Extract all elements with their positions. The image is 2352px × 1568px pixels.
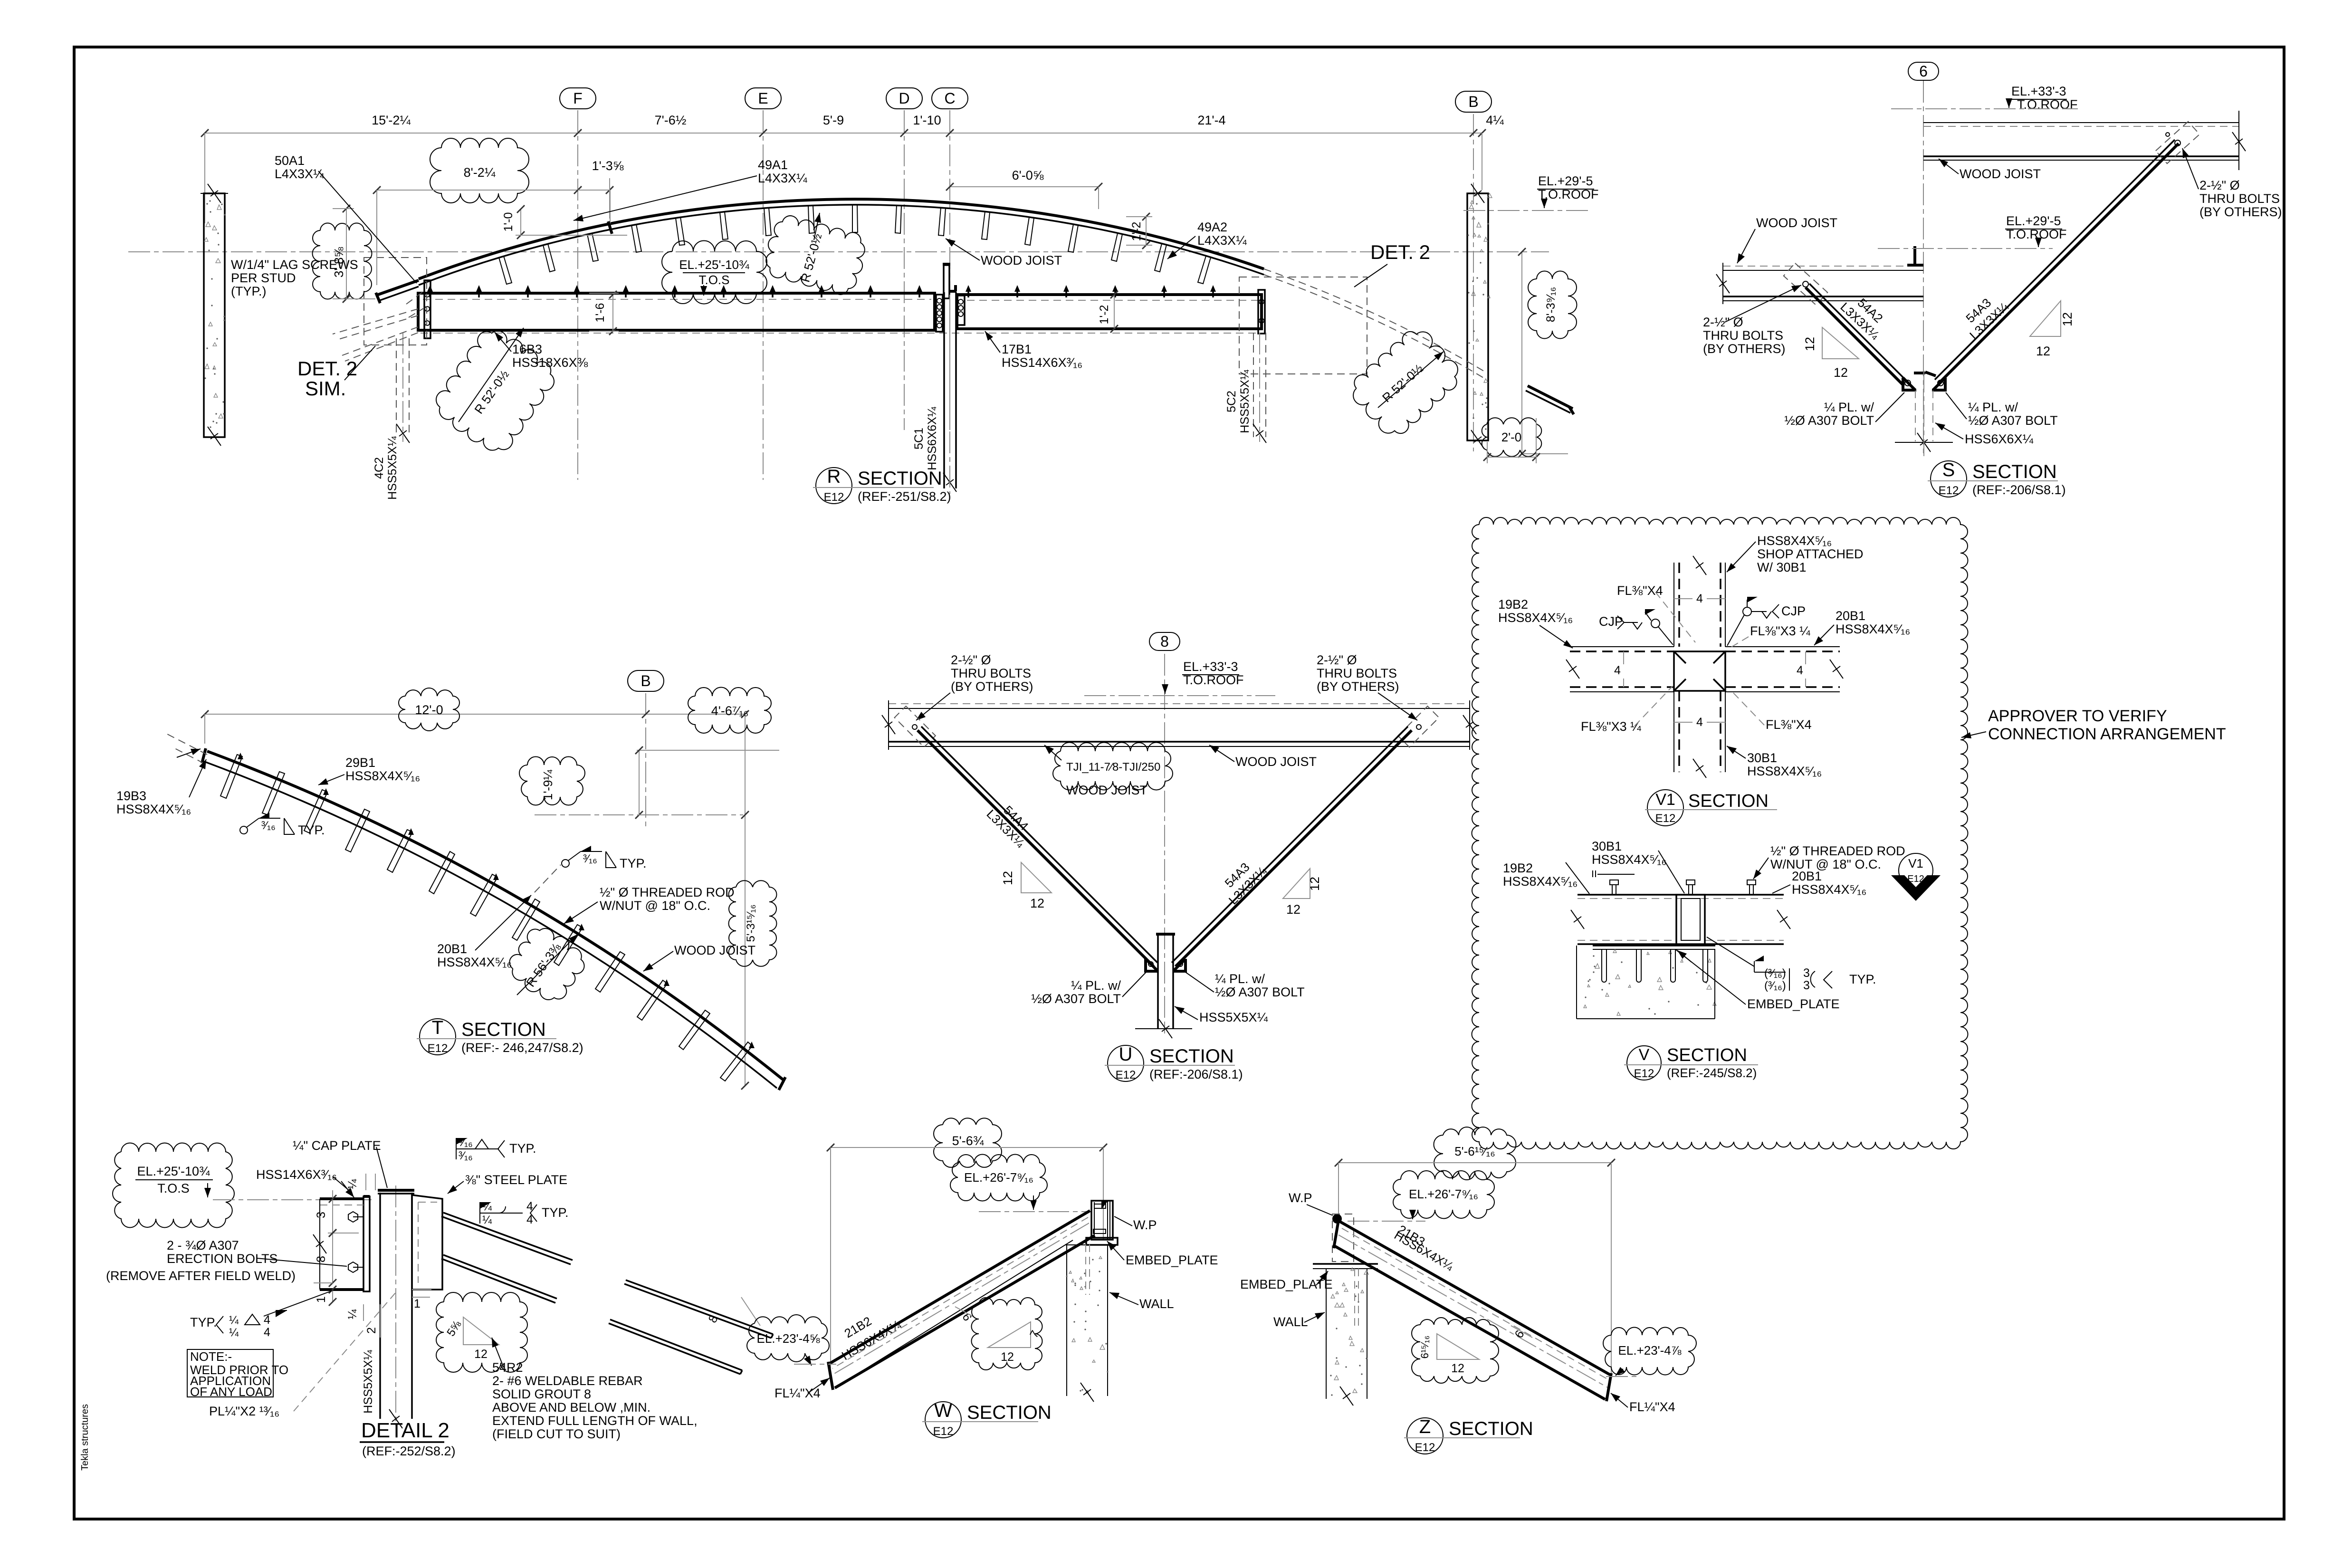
svg-text:12: 12: [1803, 337, 1817, 351]
svg-text:12: 12: [1451, 1362, 1464, 1375]
svg-text:E12: E12: [1634, 1067, 1654, 1080]
svg-text:½Ø A307 BOLT: ½Ø A307 BOLT: [1215, 985, 1305, 999]
svg-text:HSS6X6X¼: HSS6X6X¼: [1965, 432, 2034, 446]
svg-text:HSS8X4X⁵⁄₁₆: HSS8X4X⁵⁄₁₆: [1836, 622, 1910, 636]
svg-text:L4X3X¼: L4X3X¼: [275, 167, 324, 181]
svg-text:(TYP.): (TYP.): [231, 284, 267, 298]
svg-text:19B2: 19B2: [1503, 861, 1533, 875]
svg-text:6¹⁵⁄₁₆: 6¹⁵⁄₁₆: [1419, 1336, 1431, 1359]
svg-text:6'-0⅝: 6'-0⅝: [1012, 168, 1044, 182]
svg-text:19B2: 19B2: [1498, 597, 1528, 612]
svg-text:½Ø A307 BOLT: ½Ø A307 BOLT: [1968, 413, 2058, 428]
svg-text:2'-0: 2'-0: [1501, 430, 1522, 444]
svg-text:³⁄₁₆: ³⁄₁₆: [459, 1136, 473, 1149]
svg-text:20B1: 20B1: [1792, 869, 1822, 883]
svg-text:E12: E12: [933, 1425, 954, 1438]
svg-text:WOOD JOIST: WOOD JOIST: [1960, 167, 2041, 181]
svg-text:½Ø A307 BOLT: ½Ø A307 BOLT: [1031, 992, 1121, 1006]
svg-text:3: 3: [1803, 979, 1810, 992]
svg-text:W.P: W.P: [1133, 1218, 1157, 1232]
svg-text:6: 6: [1919, 63, 1928, 80]
svg-text:2- #6 WELDABLE REBAR: 2- #6 WELDABLE REBAR: [492, 1374, 643, 1388]
svg-text:(FIELD CUT TO SUIT): (FIELD CUT TO SUIT): [492, 1427, 621, 1441]
svg-text:E12: E12: [428, 1042, 448, 1055]
svg-text:HSS8X4X⁵⁄₁₆: HSS8X4X⁵⁄₁₆: [1498, 611, 1573, 625]
svg-text:³⁄₁₆: ³⁄₁₆: [583, 852, 597, 865]
svg-text:E12: E12: [824, 491, 844, 504]
svg-text:SECTION: SECTION: [858, 468, 942, 489]
svg-text:T: T: [432, 1017, 443, 1038]
svg-text:¼ PL. w/: ¼ PL. w/: [1968, 400, 2018, 414]
svg-text:2: 2: [365, 1327, 378, 1334]
svg-text:C: C: [944, 90, 955, 107]
svg-text:HSS8X4X⁵⁄₁₆: HSS8X4X⁵⁄₁₆: [1757, 534, 1832, 548]
svg-text:50A1: 50A1: [275, 153, 305, 168]
svg-text:F: F: [573, 90, 583, 107]
svg-text:E12: E12: [1116, 1069, 1136, 1081]
svg-text:SECTION: SECTION: [967, 1402, 1052, 1423]
svg-text:7'-6½: 7'-6½: [655, 113, 687, 127]
svg-text:ABOVE AND BELOW ,MIN.: ABOVE AND BELOW ,MIN.: [492, 1400, 650, 1415]
svg-text:17B1: 17B1: [1002, 342, 1032, 356]
svg-text:DETAIL 2: DETAIL 2: [361, 1419, 449, 1442]
svg-text:4¼: 4¼: [1486, 113, 1504, 127]
svg-text:SHOP ATTACHED: SHOP ATTACHED: [1757, 547, 1864, 561]
svg-text:HSS8X4X⁵⁄₁₆: HSS8X4X⁵⁄₁₆: [1592, 852, 1666, 867]
svg-text:HSS8X4X⁵⁄₁₆: HSS8X4X⁵⁄₁₆: [345, 769, 420, 783]
svg-text:2-½" Ø: 2-½" Ø: [1317, 653, 1357, 667]
svg-text:W/NUT @ 18" O.C.: W/NUT @ 18" O.C.: [600, 899, 710, 913]
svg-text:EL.+26'-7⁹⁄₁₆: EL.+26'-7⁹⁄₁₆: [1409, 1187, 1478, 1201]
svg-text:TYP.: TYP.: [298, 823, 325, 837]
svg-text:12: 12: [1834, 365, 1848, 380]
svg-text:2-½" Ø: 2-½" Ø: [2199, 178, 2240, 192]
svg-text:EL.+29'-5: EL.+29'-5: [2006, 214, 2061, 228]
svg-text:E12: E12: [1655, 812, 1676, 825]
svg-text:½Ø A307 BOLT: ½Ø A307 BOLT: [1784, 413, 1874, 428]
svg-text:1'-3⅝: 1'-3⅝: [592, 159, 624, 173]
svg-text:TYP.: TYP.: [509, 1141, 536, 1156]
svg-text:12'-0: 12'-0: [415, 703, 443, 717]
svg-text:4C2: 4C2: [373, 457, 386, 479]
svg-text:¼ PL. w/: ¼ PL. w/: [1215, 972, 1265, 986]
svg-text:(³⁄₁₆): (³⁄₁₆): [1764, 967, 1786, 980]
svg-text:½" Ø THREADED ROD: ½" Ø THREADED ROD: [1770, 844, 1905, 858]
svg-text:EL.+33'-3: EL.+33'-3: [2011, 84, 2066, 98]
svg-text:1: 1: [414, 1297, 421, 1310]
svg-text:FL⅜"X4: FL⅜"X4: [1617, 583, 1663, 598]
svg-text:HSS18X6X⅜: HSS18X6X⅜: [512, 355, 588, 370]
svg-text:THRU BOLTS: THRU BOLTS: [2199, 191, 2280, 206]
svg-text:W.P: W.P: [1289, 1191, 1312, 1205]
svg-text:E: E: [758, 90, 768, 107]
svg-text:V: V: [1639, 1046, 1650, 1064]
svg-text:(³⁄₁₆): (³⁄₁₆): [1764, 979, 1786, 992]
svg-text:5C2: 5C2: [1225, 391, 1238, 412]
svg-text:2-½" Ø: 2-½" Ø: [951, 653, 991, 667]
svg-text:HSS8X4X⁵⁄₁₆: HSS8X4X⁵⁄₁₆: [437, 955, 512, 969]
svg-text:TYP.: TYP.: [1849, 972, 1876, 986]
svg-text:30B1: 30B1: [1747, 751, 1777, 765]
svg-text:EL.+23'-4⅞: EL.+23'-4⅞: [1618, 1343, 1682, 1358]
svg-text:S: S: [1942, 459, 1955, 480]
svg-text:V1: V1: [1655, 791, 1675, 809]
svg-text:HSS8X4X⁵⁄₁₆: HSS8X4X⁵⁄₁₆: [1747, 764, 1822, 778]
svg-text:(REF:-252/S8.2): (REF:-252/S8.2): [362, 1444, 456, 1458]
svg-text:HSS5X5X¼: HSS5X5X¼: [1238, 369, 1252, 433]
svg-text:WOOD JOIST: WOOD JOIST: [1235, 755, 1317, 769]
svg-text:1'-0: 1'-0: [502, 212, 515, 232]
svg-text:L4X3X¼: L4X3X¼: [1197, 233, 1247, 248]
svg-text:EMBED_PLATE: EMBED_PLATE: [1747, 997, 1840, 1011]
svg-text:2-½" Ø: 2-½" Ø: [1703, 315, 1743, 329]
svg-text:THRU BOLTS: THRU BOLTS: [1317, 666, 1397, 680]
svg-text:(REF:-245/S8.2): (REF:-245/S8.2): [1667, 1066, 1757, 1080]
svg-text:(REF:-206/S8.1): (REF:-206/S8.1): [1149, 1067, 1243, 1081]
svg-text:¼: ¼: [482, 1214, 492, 1226]
svg-text:½" Ø THREADED ROD: ½" Ø THREADED ROD: [600, 885, 735, 899]
svg-text:Z: Z: [1419, 1416, 1431, 1437]
svg-text:5'-6¹⁵⁄₁₆: 5'-6¹⁵⁄₁₆: [1454, 1144, 1495, 1158]
svg-text:T.O.S: T.O.S: [698, 273, 729, 287]
svg-text:SECTION: SECTION: [1449, 1418, 1533, 1439]
svg-text:¼: ¼: [229, 1326, 239, 1339]
svg-text:4: 4: [1696, 592, 1703, 605]
svg-text:B: B: [641, 672, 650, 689]
svg-text:SECTION: SECTION: [461, 1019, 546, 1040]
svg-text:EXTEND FULL LENGTH OF WALL,: EXTEND FULL LENGTH OF WALL,: [492, 1414, 698, 1428]
svg-text:OF ANY LOAD: OF ANY LOAD: [190, 1385, 272, 1399]
svg-text:1'-10: 1'-10: [913, 113, 941, 127]
svg-text:54R2: 54R2: [492, 1360, 523, 1375]
svg-text:5'-6¾: 5'-6¾: [952, 1134, 984, 1148]
svg-text:TYP.: TYP.: [620, 856, 647, 870]
svg-text:4'-6⁷⁄₁₆: 4'-6⁷⁄₁₆: [711, 704, 748, 718]
svg-text:Tekla structures: Tekla structures: [80, 1404, 90, 1471]
svg-text:30B1: 30B1: [1592, 839, 1622, 853]
svg-text:DET. 2: DET. 2: [1370, 241, 1430, 263]
svg-text:12: 12: [1030, 896, 1044, 910]
svg-text:(BY OTHERS): (BY OTHERS): [2199, 205, 2282, 219]
svg-text:WOOD JOIST: WOOD JOIST: [1066, 783, 1147, 797]
svg-text:12: 12: [2060, 312, 2075, 326]
svg-text:FL¼"X4: FL¼"X4: [1629, 1400, 1675, 1414]
svg-text:EL.+25'-10¾: EL.+25'-10¾: [679, 258, 749, 272]
svg-text:WALL: WALL: [1273, 1315, 1308, 1329]
svg-text:HSS6X6X¼: HSS6X6X¼: [926, 406, 939, 470]
svg-text:8: 8: [315, 1256, 328, 1262]
svg-text:³⁄₁₆: ³⁄₁₆: [261, 819, 276, 832]
svg-text:20B1: 20B1: [1836, 609, 1865, 623]
svg-text:2 - ¾Ø A307: 2 - ¾Ø A307: [167, 1238, 239, 1252]
svg-text:12: 12: [474, 1348, 488, 1361]
svg-text:4: 4: [1797, 664, 1803, 677]
svg-text:¼: ¼: [229, 1314, 239, 1327]
svg-text:T.O.S: T.O.S: [157, 1181, 190, 1195]
svg-text:4: 4: [264, 1326, 270, 1339]
svg-text:EL.+29'-5: EL.+29'-5: [1538, 174, 1593, 188]
svg-text:PL¼"X2 ¹³⁄₁₆: PL¼"X2 ¹³⁄₁₆: [209, 1404, 279, 1418]
svg-text:R: R: [827, 466, 841, 487]
svg-text:NOTE:-: NOTE:-: [190, 1349, 232, 1364]
svg-text:¼: ¼: [346, 1309, 359, 1319]
svg-text:1: 1: [315, 1296, 328, 1303]
svg-text:CONNECTION ARRANGEMENT: CONNECTION ARRANGEMENT: [1988, 725, 2226, 743]
svg-text:WOOD JOIST: WOOD JOIST: [981, 253, 1062, 268]
svg-text:³⁄₁₆: ³⁄₁₆: [459, 1149, 473, 1162]
svg-text:U: U: [1119, 1044, 1133, 1065]
svg-text:WOOD JOIST: WOOD JOIST: [674, 943, 755, 957]
svg-text:THRU BOLTS: THRU BOLTS: [951, 666, 1031, 680]
svg-text:D: D: [899, 90, 909, 107]
svg-text:¼: ¼: [482, 1200, 492, 1213]
svg-text:3: 3: [315, 1212, 328, 1218]
svg-text:5'-9: 5'-9: [823, 113, 844, 127]
svg-text:¼" CAP PLATE: ¼" CAP PLATE: [293, 1138, 381, 1153]
svg-text:19B3: 19B3: [116, 789, 146, 803]
svg-text:FL⅜"X3 ¼: FL⅜"X3 ¼: [1581, 719, 1641, 734]
svg-text:(REF:- 246,247/S8.2): (REF:- 246,247/S8.2): [461, 1041, 583, 1055]
svg-text:SECTION: SECTION: [1688, 791, 1769, 811]
svg-text:(BY OTHERS): (BY OTHERS): [1703, 342, 1786, 356]
svg-text:SECTION: SECTION: [1972, 461, 2057, 482]
svg-text:(BY OTHERS): (BY OTHERS): [1317, 679, 1399, 694]
svg-text:49A1: 49A1: [758, 158, 788, 172]
svg-text:(BY OTHERS): (BY OTHERS): [951, 679, 1033, 694]
svg-text:1'-2: 1'-2: [1098, 305, 1111, 325]
svg-text:¼ PL. w/: ¼ PL. w/: [1824, 400, 1874, 414]
svg-text:HSS8X4X⁵⁄₁₆: HSS8X4X⁵⁄₁₆: [1792, 882, 1866, 897]
svg-text:SECTION: SECTION: [1667, 1045, 1747, 1065]
svg-text:SIM.: SIM.: [305, 377, 346, 400]
svg-text:4: 4: [1696, 716, 1703, 729]
svg-text:EL.+25'-10¾: EL.+25'-10¾: [137, 1164, 210, 1178]
svg-text:HSS5X5X¼: HSS5X5X¼: [1199, 1010, 1268, 1024]
svg-text:L4X3X¼: L4X3X¼: [758, 171, 807, 185]
svg-text:PER STUD: PER STUD: [231, 271, 296, 285]
svg-text:HSS5X5X¼: HSS5X5X¼: [386, 436, 399, 500]
svg-text:EL.+23'-4⅝: EL.+23'-4⅝: [757, 1331, 820, 1346]
svg-text:12: 12: [1001, 871, 1015, 885]
svg-text:1'-6: 1'-6: [593, 303, 607, 323]
svg-text:HSS14X6X³⁄₁₆: HSS14X6X³⁄₁₆: [1002, 355, 1082, 370]
svg-text:8'-3⁹⁄₁₆: 8'-3⁹⁄₁₆: [1544, 287, 1558, 322]
svg-text:HSS8X4X⁵⁄₁₆: HSS8X4X⁵⁄₁₆: [1503, 874, 1578, 889]
svg-text:SECTION: SECTION: [1149, 1046, 1234, 1067]
svg-text:APPROVER TO VERIFY: APPROVER TO VERIFY: [1988, 707, 2167, 725]
svg-text:EL.+26'-7⁹⁄₁₆: EL.+26'-7⁹⁄₁₆: [964, 1170, 1033, 1185]
svg-text:THRU BOLTS: THRU BOLTS: [1703, 328, 1783, 343]
svg-text:WOOD JOIST: WOOD JOIST: [1756, 216, 1837, 230]
svg-text:B: B: [1468, 93, 1478, 110]
svg-text:TYP.: TYP.: [542, 1205, 569, 1220]
svg-text:¼: ¼: [346, 1178, 359, 1189]
svg-text:CJP: CJP: [1781, 604, 1806, 618]
svg-text:12: 12: [1286, 902, 1300, 917]
svg-text:W/ 30B1: W/ 30B1: [1757, 560, 1807, 574]
svg-text:(REMOVE AFTER FIELD WELD): (REMOVE AFTER FIELD WELD): [106, 1269, 296, 1283]
svg-text:TYP.: TYP.: [190, 1315, 217, 1329]
svg-text:(REF:-251/S8.2): (REF:-251/S8.2): [858, 489, 951, 504]
svg-text:15'-2¼: 15'-2¼: [372, 113, 411, 127]
svg-text:FL¼"X4: FL¼"X4: [774, 1386, 821, 1400]
svg-text:49A2: 49A2: [1197, 220, 1227, 234]
svg-text:1'-2: 1'-2: [1130, 222, 1143, 241]
svg-text:E12: E12: [1939, 484, 1959, 497]
svg-text:(REF:-206/S8.1): (REF:-206/S8.1): [1972, 483, 2066, 497]
svg-text:W/1/4" LAG SCREWS: W/1/4" LAG SCREWS: [231, 258, 358, 272]
svg-text:TJI_11-7⁄8-TJI/250: TJI_11-7⁄8-TJI/250: [1066, 761, 1160, 774]
svg-text:WALL: WALL: [1139, 1297, 1174, 1311]
svg-text:1'-9¼: 1'-9¼: [541, 770, 555, 801]
svg-text:12: 12: [2036, 344, 2050, 358]
svg-text:5C1: 5C1: [912, 428, 926, 449]
svg-text:21'-4: 21'-4: [1197, 113, 1225, 127]
svg-text:12: 12: [1001, 1350, 1014, 1364]
svg-text:E12: E12: [1415, 1441, 1435, 1454]
svg-text:⅜" STEEL PLATE: ⅜" STEEL PLATE: [465, 1173, 567, 1187]
svg-text:HSS14X6X³⁄₁₆: HSS14X6X³⁄₁₆: [256, 1167, 337, 1182]
svg-text:16B3: 16B3: [512, 342, 542, 356]
svg-text:12: 12: [1308, 877, 1322, 891]
svg-text:20B1: 20B1: [437, 942, 467, 956]
svg-text:4: 4: [1614, 664, 1621, 677]
svg-text:3: 3: [1803, 966, 1810, 980]
svg-text:EL.+33'-3: EL.+33'-3: [1183, 660, 1238, 674]
svg-text:HSS5X5X¼: HSS5X5X¼: [362, 1349, 375, 1414]
svg-text:29B1: 29B1: [345, 755, 375, 770]
svg-text:5'-3¹⁵⁄₁₆: 5'-3¹⁵⁄₁₆: [745, 905, 757, 942]
svg-text:EMBED_PLATE: EMBED_PLATE: [1240, 1277, 1333, 1291]
svg-text:FL⅜"X4: FL⅜"X4: [1766, 717, 1812, 732]
svg-text:8: 8: [1160, 633, 1169, 650]
svg-text:HSS8X4X⁵⁄₁₆: HSS8X4X⁵⁄₁₆: [116, 802, 191, 816]
svg-text:SOLID GROUT 8: SOLID GROUT 8: [492, 1387, 591, 1401]
svg-text:8'-2¼: 8'-2¼: [464, 165, 496, 180]
svg-text:V1: V1: [1908, 856, 1923, 870]
svg-text:¼ PL. w/: ¼ PL. w/: [1071, 978, 1121, 993]
svg-text:W: W: [934, 1400, 952, 1421]
svg-text:EMBED_PLATE: EMBED_PLATE: [1126, 1253, 1218, 1267]
svg-text:FL⅜"X3 ¼: FL⅜"X3 ¼: [1750, 624, 1810, 638]
svg-text:W/NUT @ 18" O.C.: W/NUT @ 18" O.C.: [1770, 857, 1881, 871]
